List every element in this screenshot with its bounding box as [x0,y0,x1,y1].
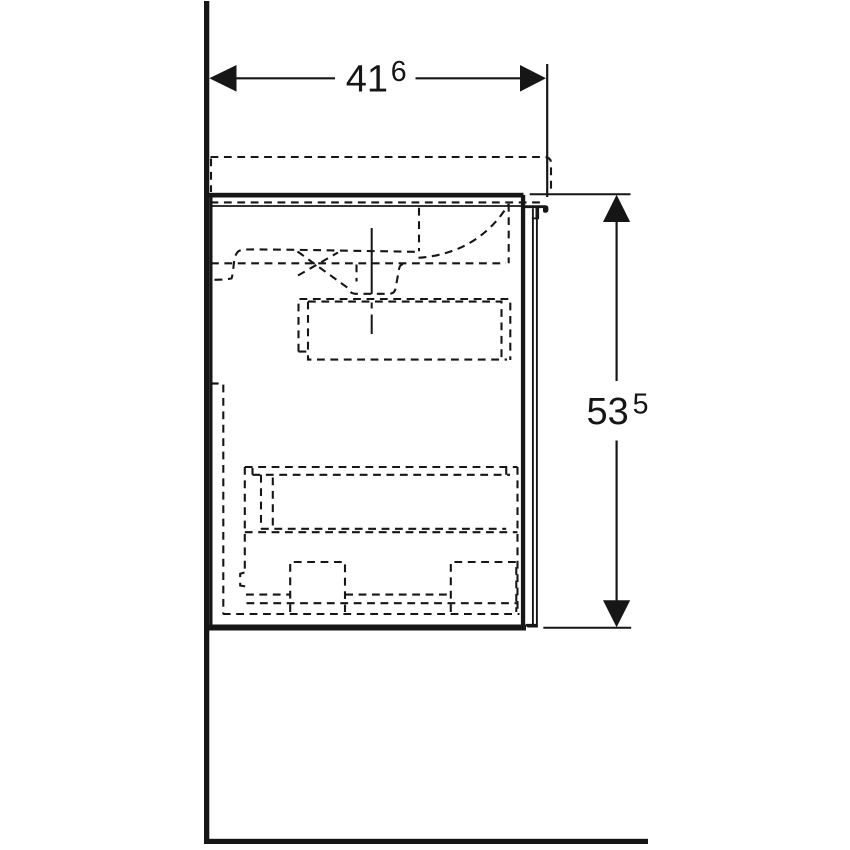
svg-text:5: 5 [633,389,649,421]
svg-text:6: 6 [391,56,407,88]
svg-text:53: 53 [587,391,629,433]
svg-text:41: 41 [346,58,388,100]
